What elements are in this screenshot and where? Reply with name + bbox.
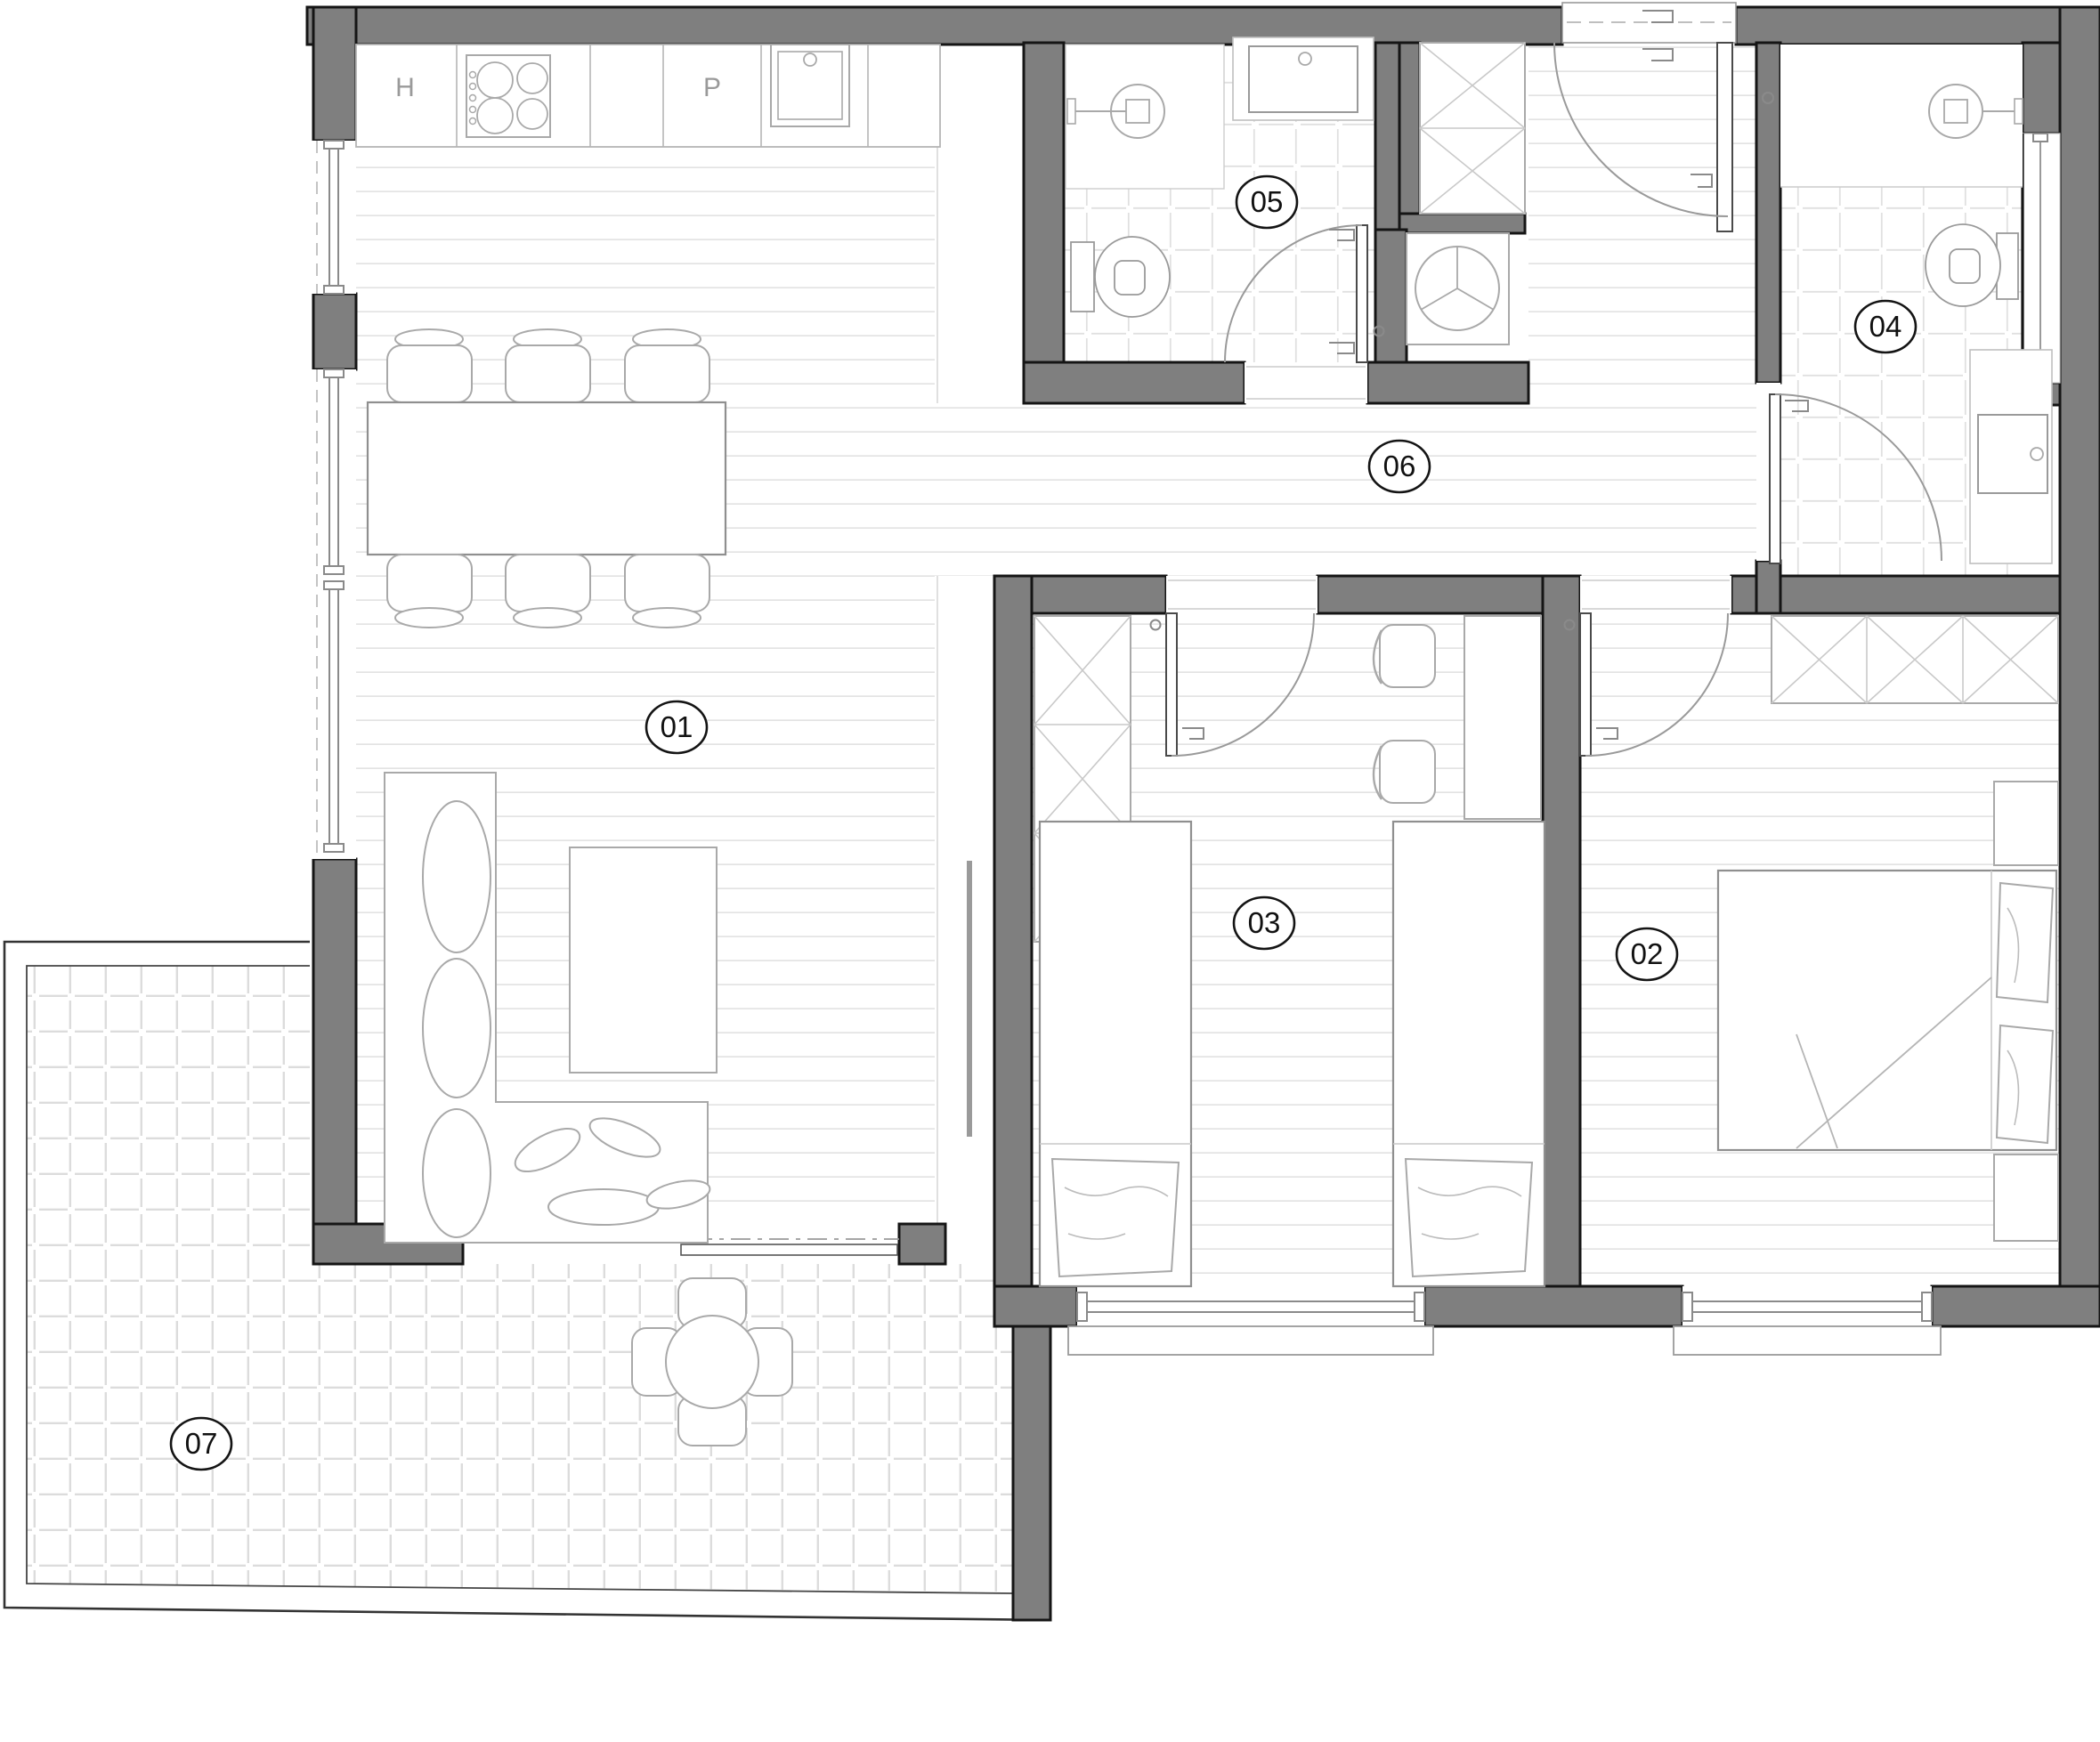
wall-bath05-bottom-left <box>1024 362 1245 403</box>
wall-left-pier-2 <box>313 294 356 369</box>
room-label-05: 05 <box>1236 176 1297 228</box>
dining-table <box>368 402 726 555</box>
desk-chair-icon <box>1374 625 1435 687</box>
wall-wm-left <box>1375 230 1407 362</box>
room-label-text: 03 <box>1248 906 1281 939</box>
pillow-icon <box>1997 883 2053 1002</box>
desk-chair-icon <box>1374 741 1435 803</box>
bathroom-sink-icon <box>1233 37 1374 120</box>
kitchen-counter <box>356 45 940 147</box>
nightstand <box>1994 1155 2058 1241</box>
dining-chair <box>625 329 709 402</box>
closet-icon <box>1420 43 1525 214</box>
dining-chair <box>506 329 590 402</box>
terrace-table-icon <box>666 1316 758 1408</box>
wall-left-pier-1 <box>313 7 356 141</box>
room-label-text: 04 <box>1869 310 1902 343</box>
wall-top-right <box>1736 7 2100 45</box>
dining-chair <box>625 555 709 628</box>
sliding-panel <box>967 861 972 1137</box>
window-bath04 <box>2023 134 2060 383</box>
room-label-04: 04 <box>1855 301 1916 352</box>
wall-closet-left <box>1399 43 1420 214</box>
single-bed-icon <box>1393 822 1545 1286</box>
hallway-floor <box>935 403 1756 576</box>
nightstand <box>1994 782 2058 865</box>
room-label-text: 02 <box>1631 937 1664 970</box>
hall-storage <box>1407 43 1525 344</box>
floor-plan-page: H P <box>0 0 2100 1742</box>
room-label-text: 07 <box>185 1427 218 1460</box>
toilet-icon <box>1071 237 1170 317</box>
dining-chair <box>387 555 472 628</box>
wall-room03-top-left <box>1032 576 1166 613</box>
wall-room03-room02 <box>1543 576 1580 1286</box>
hob-icon <box>466 55 550 137</box>
dining-chair <box>506 555 590 628</box>
window-left-a <box>310 141 356 294</box>
vanity-sink-icon <box>1970 350 2052 563</box>
wall-bath04-furr-upper <box>2023 43 2060 134</box>
sofa-cushion <box>423 1109 491 1237</box>
wall-bath04-left-upper <box>1756 43 1780 383</box>
sofa-cushion <box>423 959 491 1098</box>
room-label-text: 06 <box>1383 450 1416 482</box>
desk <box>1464 616 1541 819</box>
kitchen: H P <box>356 45 940 147</box>
window-room02 <box>1674 1286 1941 1355</box>
wall-bath05-bottom-right <box>1367 362 1528 403</box>
wardrobe-icon <box>1772 616 2058 703</box>
room-label-02: 02 <box>1617 928 1677 980</box>
washing-machine-icon <box>1407 233 1509 344</box>
room-label-06: 06 <box>1369 441 1430 492</box>
room-label-01: 01 <box>646 701 707 753</box>
pillow-icon <box>1052 1159 1179 1276</box>
wall-living-room03 <box>994 576 1032 1286</box>
wall-pier-sliding-door <box>899 1224 945 1264</box>
kitchen-label-hob: H <box>395 73 415 102</box>
floor-plan-canvas: H P <box>0 0 2100 1742</box>
wall-bottom-seg3 <box>1932 1286 2100 1326</box>
wall-bottom-seg1 <box>994 1286 1077 1326</box>
coffee-table <box>570 847 717 1073</box>
wall-left-lower <box>313 859 356 1264</box>
pillow-icon <box>1997 1025 2053 1143</box>
toilet-icon <box>1926 224 2018 306</box>
single-bed-icon <box>1040 822 1191 1286</box>
pillow-icon <box>1406 1159 1532 1276</box>
dining-chair <box>387 329 472 402</box>
kitchen-sink-icon <box>771 45 849 126</box>
sofa-pillow <box>548 1189 659 1225</box>
wall-right <box>2060 7 2100 1326</box>
double-bed-icon <box>1718 871 2056 1150</box>
wall-bottom-seg2 <box>1424 1286 1682 1326</box>
wall-closet-band <box>1399 214 1525 233</box>
room-label-text: 01 <box>661 710 693 743</box>
shower-area <box>1780 45 2023 187</box>
room-label-text: 05 <box>1251 185 1284 218</box>
room-label-03: 03 <box>1234 897 1294 949</box>
wall-room03-top-right <box>1318 576 1543 613</box>
sofa-cushion <box>423 801 491 952</box>
room-label-07: 07 <box>171 1418 231 1470</box>
window-room03 <box>1068 1286 1433 1355</box>
wall-bath04-left-lower <box>1756 561 1780 613</box>
wall-terrace-stub <box>1013 1326 1050 1620</box>
dining-set <box>368 329 726 628</box>
kitchen-label-pantry: P <box>703 73 721 102</box>
window-left-b <box>310 369 356 859</box>
wall-bath05-left <box>1024 43 1064 362</box>
